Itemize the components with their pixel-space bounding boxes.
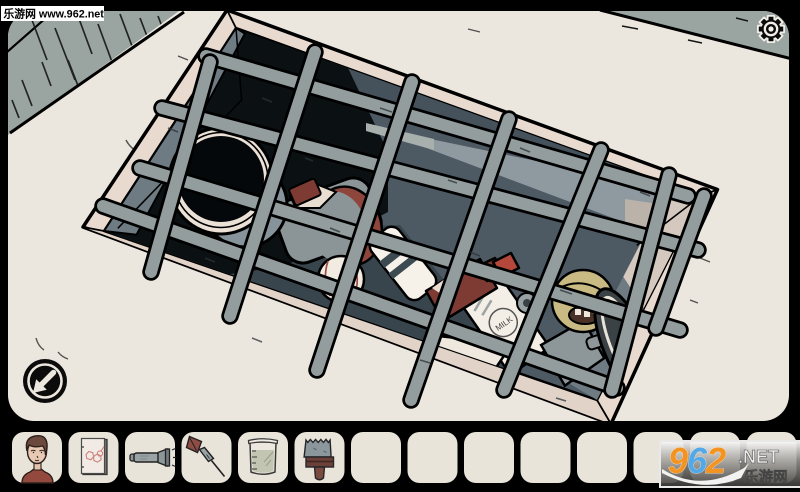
svg-text:乐游网 www.962.net: 乐游网 www.962.net [4,7,105,21]
svg-text:乐游网: 乐游网 [744,468,788,486]
svg-text:962: 962 [668,440,726,481]
svg-text:.NET: .NET [738,447,779,467]
